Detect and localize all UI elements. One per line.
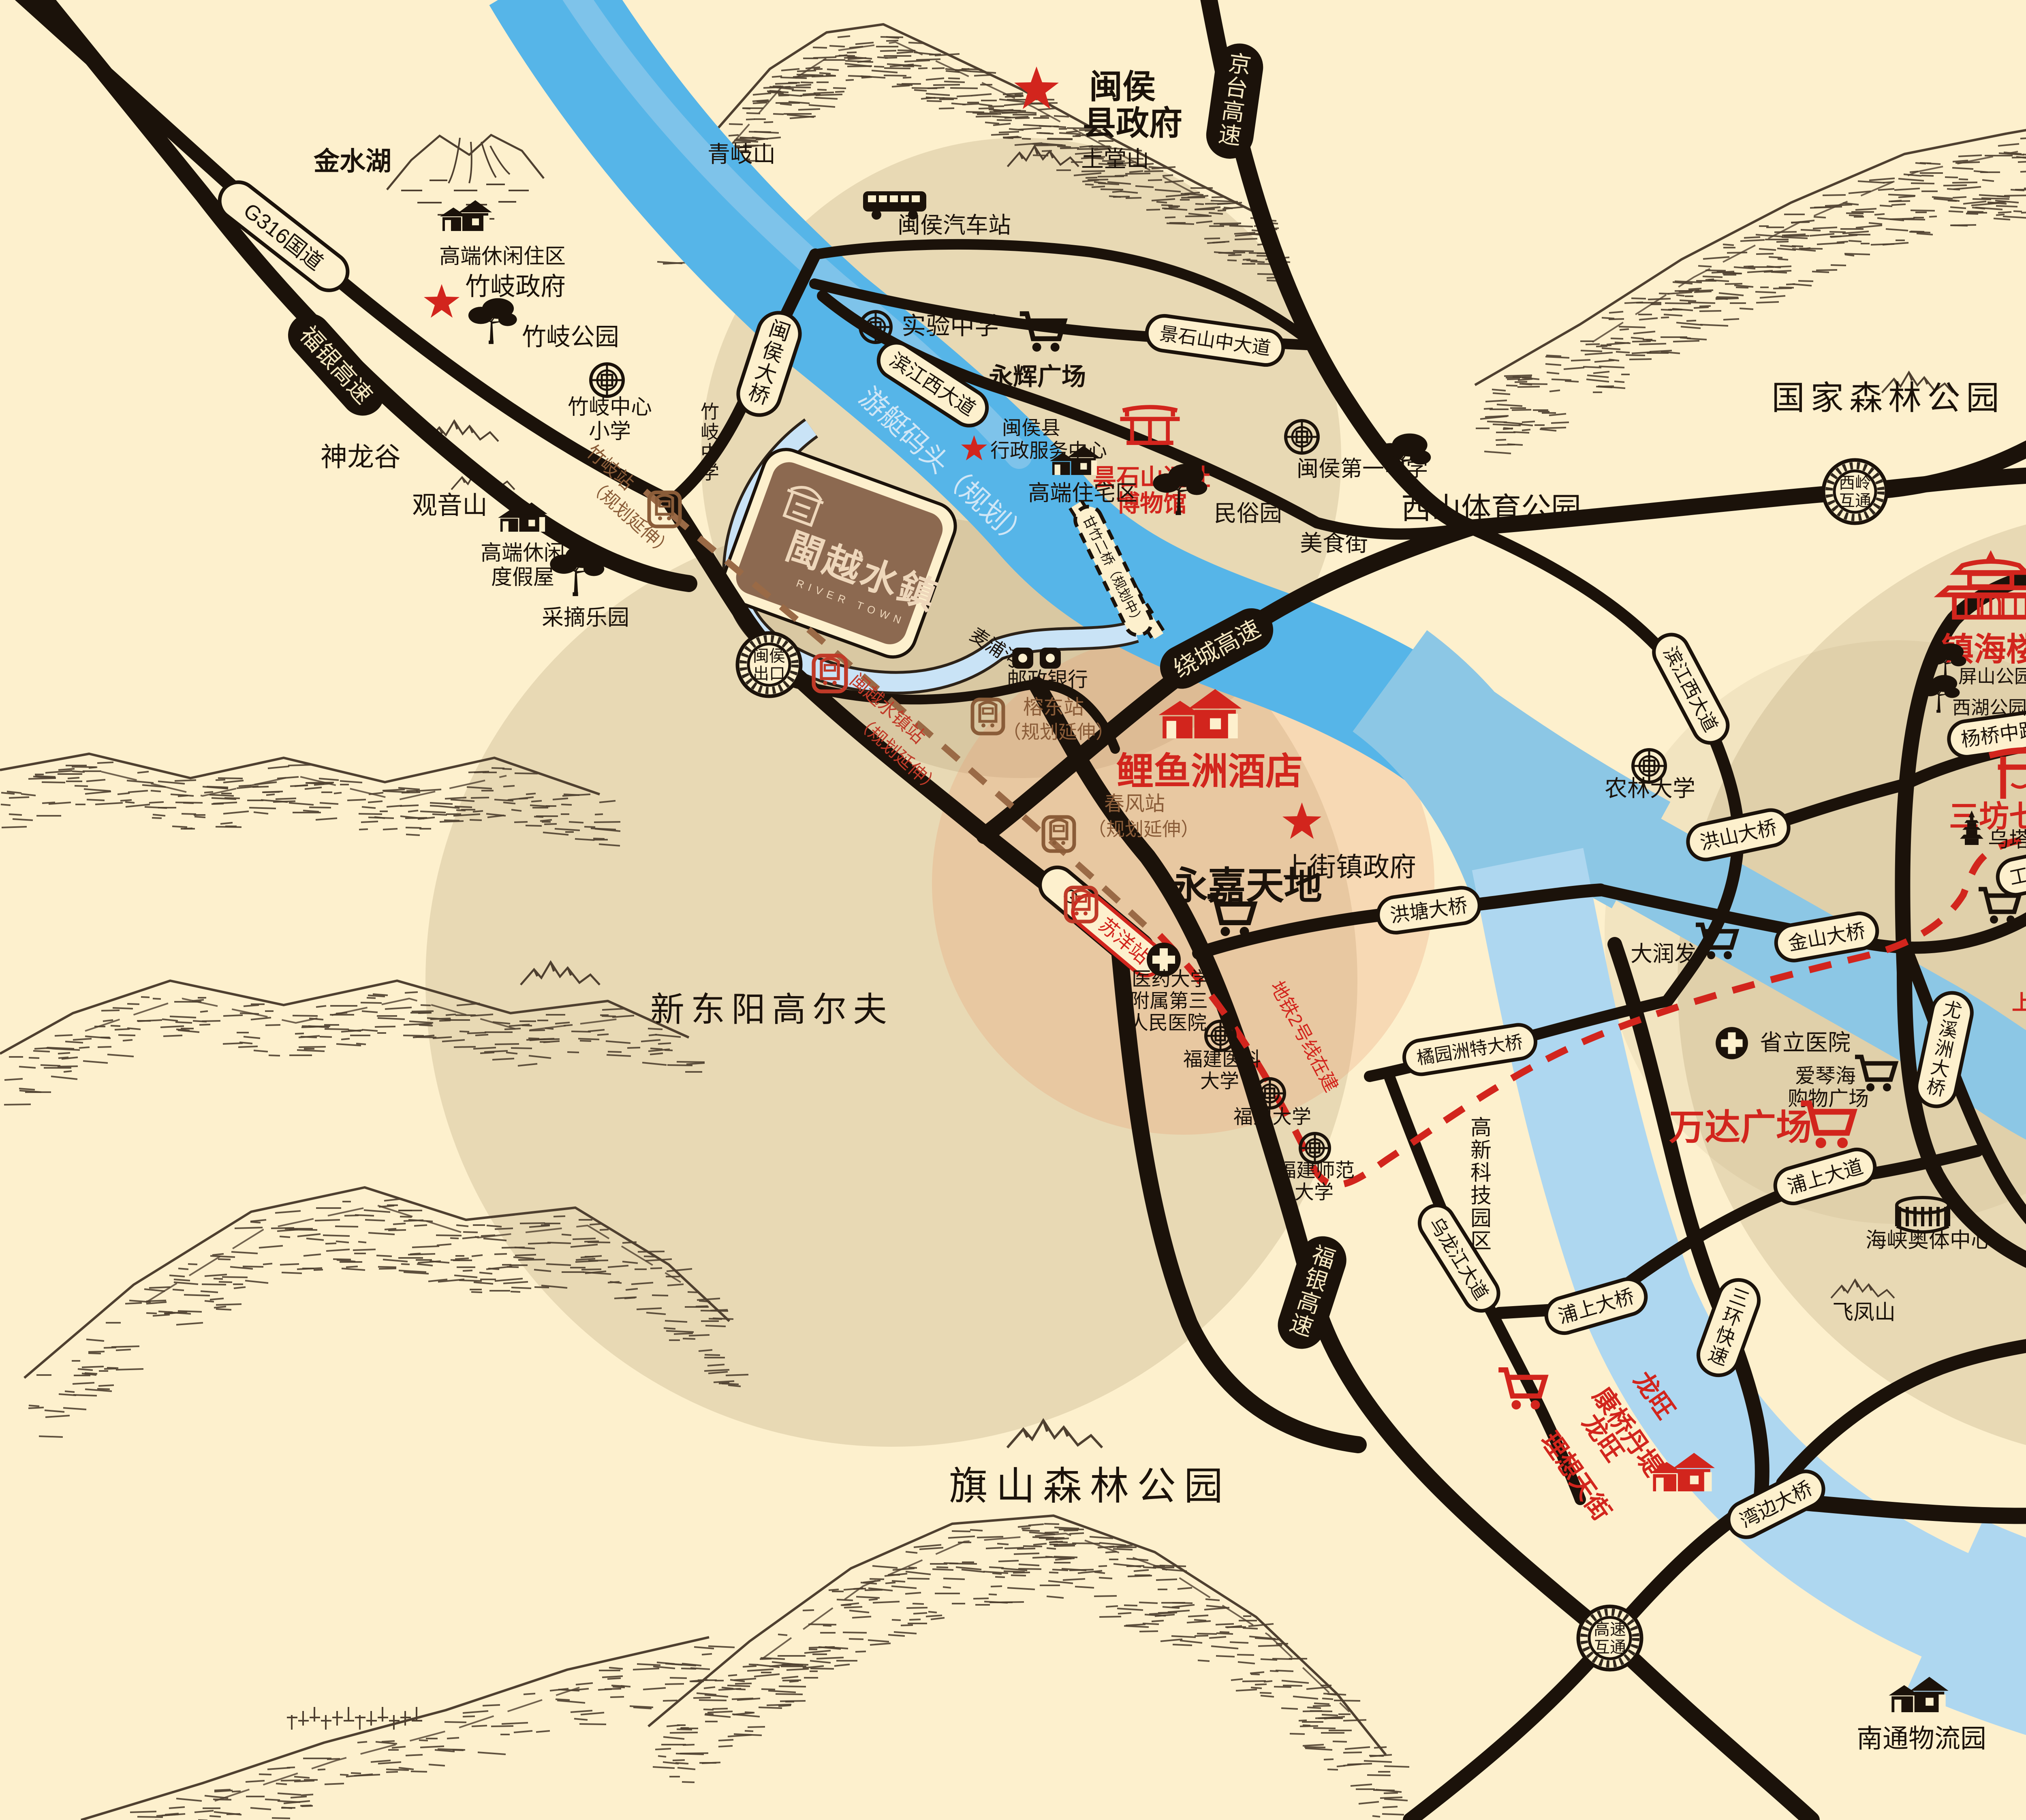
svg-text:永嘉天地: 永嘉天地 [1170, 864, 1322, 907]
svg-text:福建师范: 福建师范 [1277, 1160, 1355, 1181]
svg-text:国家森林公园: 国家森林公园 [1772, 380, 2005, 417]
svg-text:闽侯汽车站: 闽侯汽车站 [898, 212, 1011, 238]
svg-text:邮政银行: 邮政银行 [1007, 668, 1088, 691]
svg-text:美食街: 美食街 [1300, 530, 1368, 556]
svg-text:竹岐公园: 竹岐公园 [522, 323, 619, 351]
svg-text:（规划延伸）: （规划延伸） [1002, 721, 1114, 742]
svg-text:土堂山: 土堂山 [1081, 146, 1149, 172]
svg-text:新东阳高尔夫: 新东阳高尔夫 [650, 990, 893, 1029]
svg-text:西山体育公园: 西山体育公园 [1401, 492, 1581, 525]
svg-text:采摘乐园: 采摘乐园 [542, 605, 629, 630]
svg-text:竹岐中学: 竹岐中学 [701, 401, 719, 483]
svg-text:购物广场: 购物广场 [1788, 1087, 1869, 1110]
svg-text:屏山公园: 屏山公园 [1958, 666, 2026, 687]
svg-text:大润发: 大润发 [1631, 942, 1696, 966]
svg-text:闽侯: 闽侯 [1089, 68, 1156, 105]
svg-text:福州大学: 福州大学 [1233, 1106, 1311, 1128]
svg-text:（规划延伸）: （规划延伸） [1088, 819, 1199, 840]
svg-text:度假屋: 度假屋 [491, 566, 554, 589]
svg-text:高端住宅区: 高端住宅区 [1028, 481, 1137, 505]
svg-text:青岐山: 青岐山 [707, 141, 776, 167]
svg-text:大学: 大学 [1295, 1182, 1334, 1203]
svg-text:附属第三: 附属第三 [1130, 990, 1208, 1012]
svg-text:金水湖: 金水湖 [313, 147, 391, 176]
svg-text:民俗园: 民俗园 [1214, 500, 1282, 526]
svg-text:闽侯: 闽侯 [753, 647, 785, 665]
svg-text:上下杭历史: 上下杭历史 [2012, 991, 2026, 1015]
svg-text:人民医院: 人民医院 [1129, 1012, 1207, 1034]
svg-text:旗山森林公园: 旗山森林公园 [949, 1465, 1231, 1508]
svg-text:万达广场: 万达广场 [1669, 1107, 1812, 1147]
svg-text:榕东站: 榕东站 [1023, 696, 1084, 719]
svg-text:竹岐中心: 竹岐中心 [568, 396, 652, 419]
svg-text:福建医科: 福建医科 [1183, 1049, 1261, 1070]
svg-text:互通: 互通 [1839, 492, 1871, 510]
svg-text:高新科技园区: 高新科技园区 [1470, 1116, 1492, 1253]
svg-text:爱琴海: 爱琴海 [1795, 1065, 1856, 1087]
svg-text:实验中学: 实验中学 [902, 312, 999, 340]
svg-text:观音山: 观音山 [412, 492, 487, 520]
svg-text:高速: 高速 [1594, 1621, 1626, 1638]
svg-text:小学: 小学 [589, 420, 631, 443]
svg-text:海峡奥体中心: 海峡奥体中心 [1866, 1229, 1992, 1252]
svg-text:农林大学: 农林大学 [1605, 776, 1695, 801]
svg-text:南通物流园: 南通物流园 [1857, 1724, 1986, 1753]
svg-text:闽侯县: 闽侯县 [1002, 417, 1060, 439]
svg-text:春风站: 春风站 [1104, 792, 1165, 815]
svg-text:出口: 出口 [753, 665, 785, 683]
svg-text:西岭: 西岭 [1839, 474, 1871, 492]
svg-text:神龙谷: 神龙谷 [321, 442, 401, 472]
svg-text:飞凤山: 飞凤山 [1832, 1301, 1896, 1324]
svg-text:省立医院: 省立医院 [1760, 1030, 1851, 1055]
svg-text:互通: 互通 [1594, 1638, 1626, 1656]
svg-text:西湖公园: 西湖公园 [1952, 697, 2026, 718]
svg-text:县政府: 县政府 [1083, 105, 1182, 142]
svg-text:高端休闲住区: 高端休闲住区 [439, 245, 566, 268]
svg-text:乌塔: 乌塔 [1988, 828, 2026, 852]
svg-text:大学: 大学 [1200, 1071, 1239, 1092]
svg-text:竹岐政府: 竹岐政府 [465, 273, 566, 301]
svg-text:鲤鱼洲酒店: 鲤鱼洲酒店 [1116, 751, 1303, 792]
svg-text:中医药大学: 中医药大学 [1112, 969, 1210, 990]
svg-text:永辉广场: 永辉广场 [989, 363, 1086, 390]
